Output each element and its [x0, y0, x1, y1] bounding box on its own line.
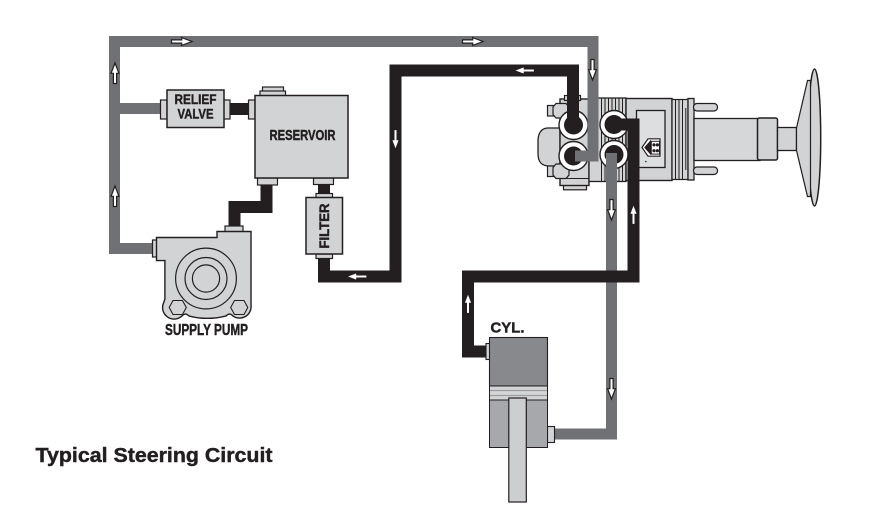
svg-text:RESERVOIR: RESERVOIR: [270, 128, 336, 144]
svg-text:CYL.: CYL.: [491, 320, 525, 337]
svg-text:Typical Steering Circuit: Typical Steering Circuit: [36, 444, 273, 467]
svg-text:FILTER: FILTER: [316, 204, 332, 249]
svg-text:VALVE: VALVE: [178, 107, 214, 123]
svg-text:SUPPLY PUMP: SUPPLY PUMP: [165, 322, 248, 339]
